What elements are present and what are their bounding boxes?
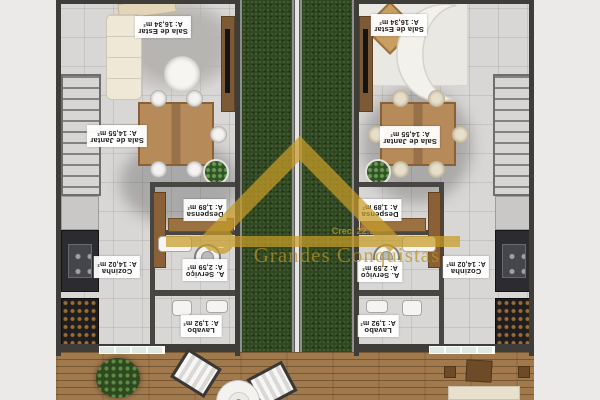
room-label-sala-de-jantar-right: Sala de Jantar A: 14,55 m² (380, 126, 440, 148)
armchair-left (164, 56, 200, 92)
deck-dining-table (448, 386, 520, 400)
kitchen-counter-left (61, 196, 99, 230)
interior-wall (354, 290, 444, 296)
room-name: A. Serviço (361, 271, 400, 280)
chair (150, 90, 167, 107)
deck-stool (518, 366, 530, 378)
room-label-lavabo-left: Lavabo A: 1,92 m² (180, 315, 221, 337)
room-area: A: 1,89 m² (186, 201, 223, 210)
bottle-cabinet-left (61, 298, 99, 346)
room-name: Sala de Estar (138, 27, 188, 36)
chair (392, 161, 409, 178)
chair (428, 90, 445, 107)
room-label-lavabo-right: Lavabo A: 1,92 m² (357, 315, 398, 337)
room-name: Despensa (361, 210, 398, 219)
room-label-cozinha-right: Cozinha A: 14,02 m² (443, 256, 489, 278)
wall (354, 0, 359, 356)
room-label-sala-de-estar-right: Sala de Estar A: 16,34 m² (371, 14, 427, 36)
tv-icon (225, 29, 230, 93)
room-label-despensa-left: Despensa A: 1,89 m² (183, 199, 226, 221)
room-name: Sala de Jantar (90, 136, 144, 145)
lavabo-sink-left (206, 300, 228, 313)
chair (452, 126, 469, 143)
plate-icon (228, 392, 250, 400)
chair (186, 90, 203, 107)
room-name: A. Serviço (186, 270, 225, 279)
left-margin (0, 0, 56, 400)
room-area: A: 14,02 m² (446, 258, 486, 267)
interior-wall (150, 182, 240, 187)
chair (210, 126, 227, 143)
stove-icon (502, 244, 526, 278)
laundry-sink-left (158, 236, 192, 252)
room-label-servico-left: A. Serviço A: 2,59 m² (183, 259, 228, 281)
room-area: A: 16,34 m² (138, 18, 188, 27)
room-area: A: 1,92 m² (360, 317, 395, 326)
wall (529, 0, 534, 356)
room-area: A: 16,34 m² (374, 16, 424, 25)
deck-chair (465, 359, 492, 382)
room-label-sala-de-jantar-left: Sala de Jantar A: 14,55 m² (87, 125, 147, 147)
deck-bush (96, 358, 140, 398)
lavabo-sink-right (366, 300, 388, 313)
room-area: A: 2,59 m² (186, 261, 225, 270)
room-area: A: 14,55 m² (383, 128, 437, 137)
room-area: A: 1,89 m² (361, 201, 398, 210)
chair (392, 90, 409, 107)
grass-strip-right (300, 0, 354, 352)
toilet-right (402, 300, 422, 316)
room-area: A: 14,55 m² (90, 127, 144, 136)
wall (56, 0, 61, 356)
room-area: A: 14,02 m² (97, 258, 137, 267)
dining-table-left (138, 102, 214, 166)
tv-rack-left (221, 16, 235, 112)
bottle-cabinet-right (495, 298, 533, 346)
wall (235, 0, 240, 356)
floor-plan: Sala de Estar A: 16,34 m² Sala de Jantar… (0, 0, 600, 400)
room-name: Lavabo (187, 326, 214, 335)
stairs-right (493, 74, 533, 196)
chair (186, 161, 203, 178)
grass-strip-left (240, 0, 294, 352)
room-name: Cozinha (451, 267, 482, 276)
kitchen-counter-right (495, 196, 533, 230)
tv-icon (363, 29, 368, 93)
tall-cabinet-right (428, 192, 441, 268)
room-label-sala-de-estar-left: Sala de Estar A: 16,34 m² (135, 16, 191, 38)
room-label-cozinha-left: Cozinha A: 14,02 m² (94, 256, 140, 278)
wall (354, 0, 534, 4)
window-right (429, 346, 495, 354)
window-left (99, 346, 165, 354)
interior-wall (354, 182, 444, 187)
room-area: A: 1,92 m² (183, 317, 218, 326)
room-name: Cozinha (102, 267, 133, 276)
chair (150, 161, 167, 178)
toilet-left (172, 300, 192, 316)
interior-wall (150, 290, 240, 296)
right-margin (534, 0, 600, 400)
laundry-sink-right (402, 236, 436, 252)
room-area: A: 2,59 m² (361, 262, 400, 271)
room-name: Sala de Estar (374, 25, 424, 34)
room-label-servico-right: A. Serviço A: 2,59 m² (358, 260, 403, 282)
room-name: Sala de Jantar (383, 137, 437, 146)
tall-cabinet-left (153, 192, 166, 268)
deck-stool (444, 366, 456, 378)
room-name: Despensa (186, 210, 223, 219)
chair (428, 161, 445, 178)
stove-icon (68, 244, 92, 278)
center-divider-wall (294, 0, 300, 400)
room-label-despensa-right: Despensa A: 1,89 m² (358, 199, 401, 221)
room-name: Lavabo (364, 326, 391, 335)
wall (56, 0, 240, 4)
